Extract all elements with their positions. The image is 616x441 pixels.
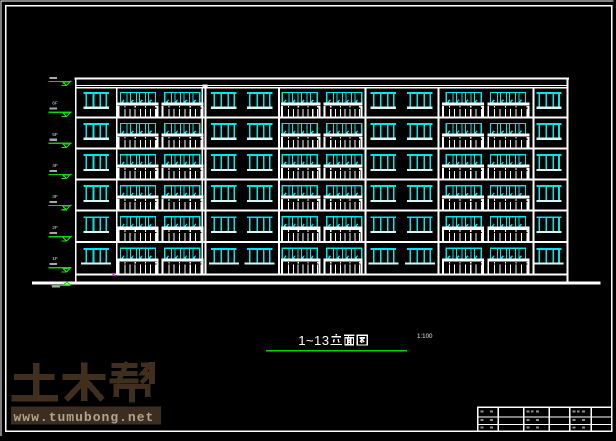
- svg-text:1F: 1F: [52, 256, 58, 262]
- svg-text:1~13: 1~13: [298, 333, 329, 348]
- svg-text:6F: 6F: [52, 101, 58, 107]
- svg-text:www.tumubong.net: www.tumubong.net: [14, 410, 155, 425]
- svg-text:3F: 3F: [52, 194, 58, 200]
- svg-text:1:100: 1:100: [417, 333, 433, 340]
- svg-text:4F: 4F: [52, 163, 58, 169]
- svg-text:2F: 2F: [52, 225, 58, 231]
- svg-text:5F: 5F: [52, 132, 58, 138]
